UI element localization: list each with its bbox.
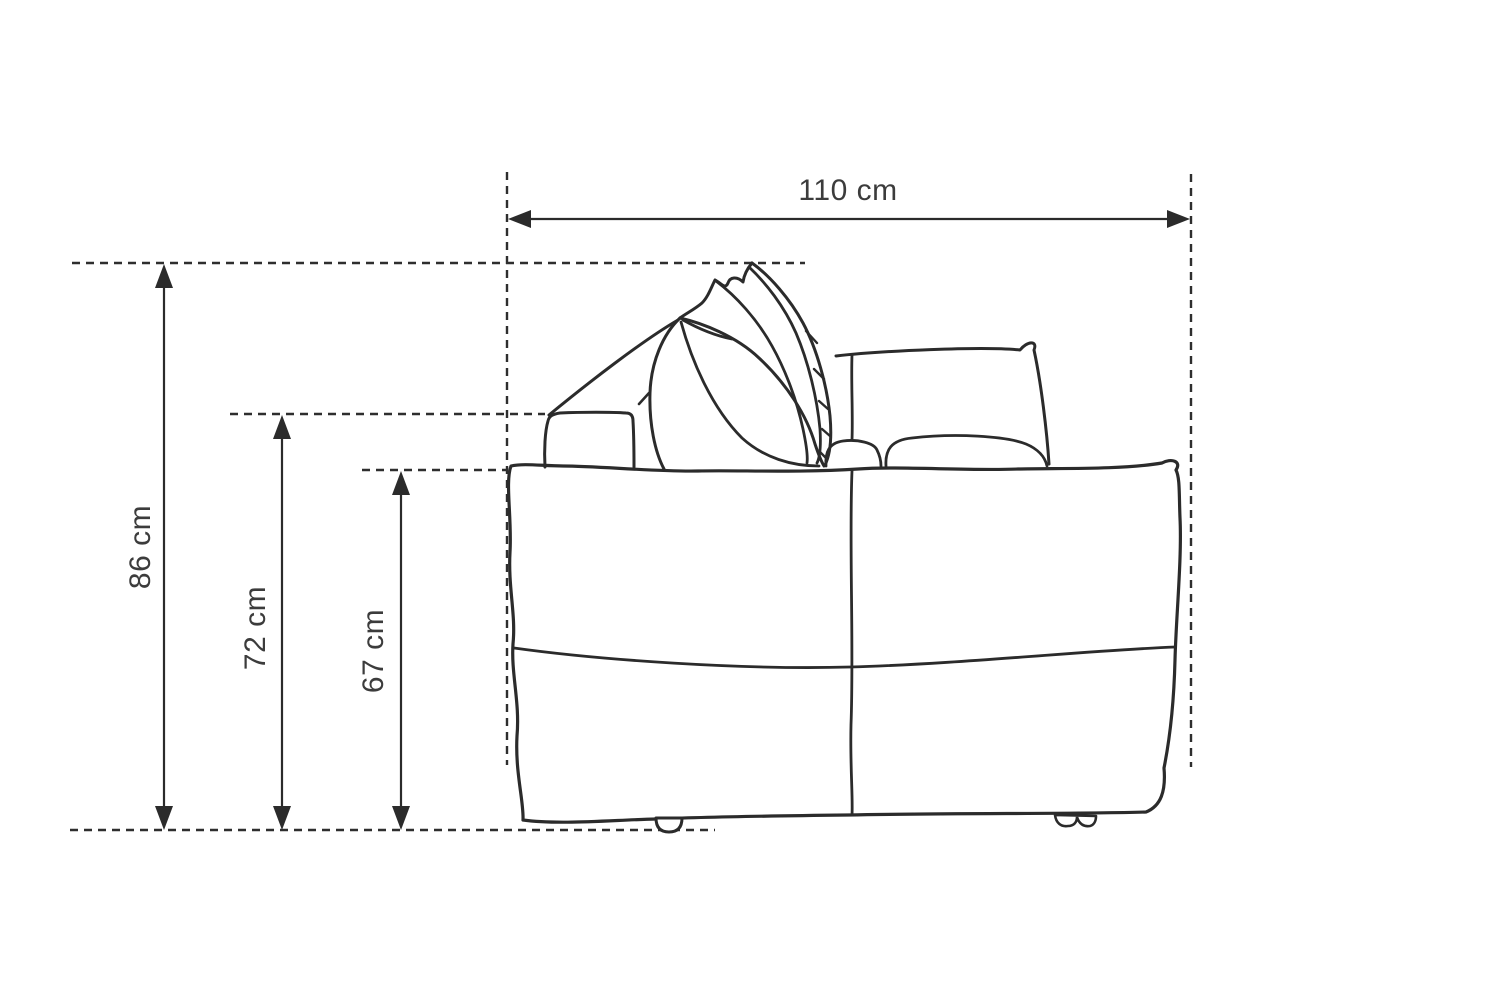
dimension-label-overall-height: 86 cm xyxy=(124,505,158,589)
sofa-body-outline xyxy=(509,461,1181,823)
dimension-arrows xyxy=(155,210,1190,830)
pillow-front-seam xyxy=(681,322,819,466)
sofa-backrest-outline xyxy=(836,343,1049,464)
sofa-foot-right xyxy=(1055,815,1096,826)
sofa-seat-cushion-large xyxy=(886,436,1047,466)
sofa-armrest-box xyxy=(545,412,634,467)
diagram-canvas xyxy=(0,0,1500,1000)
pillow-lean-edge xyxy=(549,320,678,415)
pillow-crease-tick xyxy=(639,393,649,404)
dimension-label-backrest-height: 72 cm xyxy=(239,586,273,670)
sofa-foot-left xyxy=(656,818,682,832)
pillow-top-jagged-edge xyxy=(680,263,752,318)
dimension-label-seat-back-height: 67 cm xyxy=(357,609,391,693)
dimension-diagram: 110 cm 86 cm 72 cm 67 cm xyxy=(0,0,1500,1000)
dashed-guides xyxy=(70,172,1191,830)
sofa-horizontal-seam xyxy=(514,647,1175,668)
dimension-arrow-width xyxy=(508,210,1190,228)
dimension-arrow-seat-back-height xyxy=(392,471,410,830)
dimension-label-width: 110 cm xyxy=(798,174,897,208)
pillow-fold-line xyxy=(683,320,732,339)
sofa-seat-cushion-small xyxy=(826,440,881,466)
pillow-front-left xyxy=(650,318,680,469)
dimension-arrow-backrest-height xyxy=(273,415,291,830)
pillow-front-right xyxy=(680,318,824,466)
sofa-backrest-left-seam xyxy=(852,355,853,440)
sofa-vertical-seam xyxy=(851,471,852,815)
sofa-line-drawing xyxy=(509,263,1181,832)
